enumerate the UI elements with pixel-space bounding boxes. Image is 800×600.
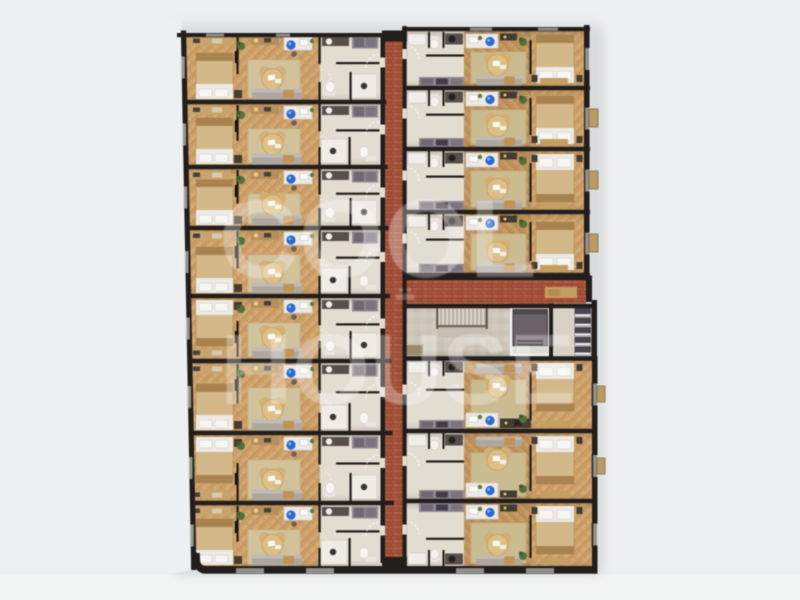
- svg-text:HOUSE: HOUSE: [220, 314, 576, 426]
- svg-text:COOL: COOL: [219, 178, 537, 301]
